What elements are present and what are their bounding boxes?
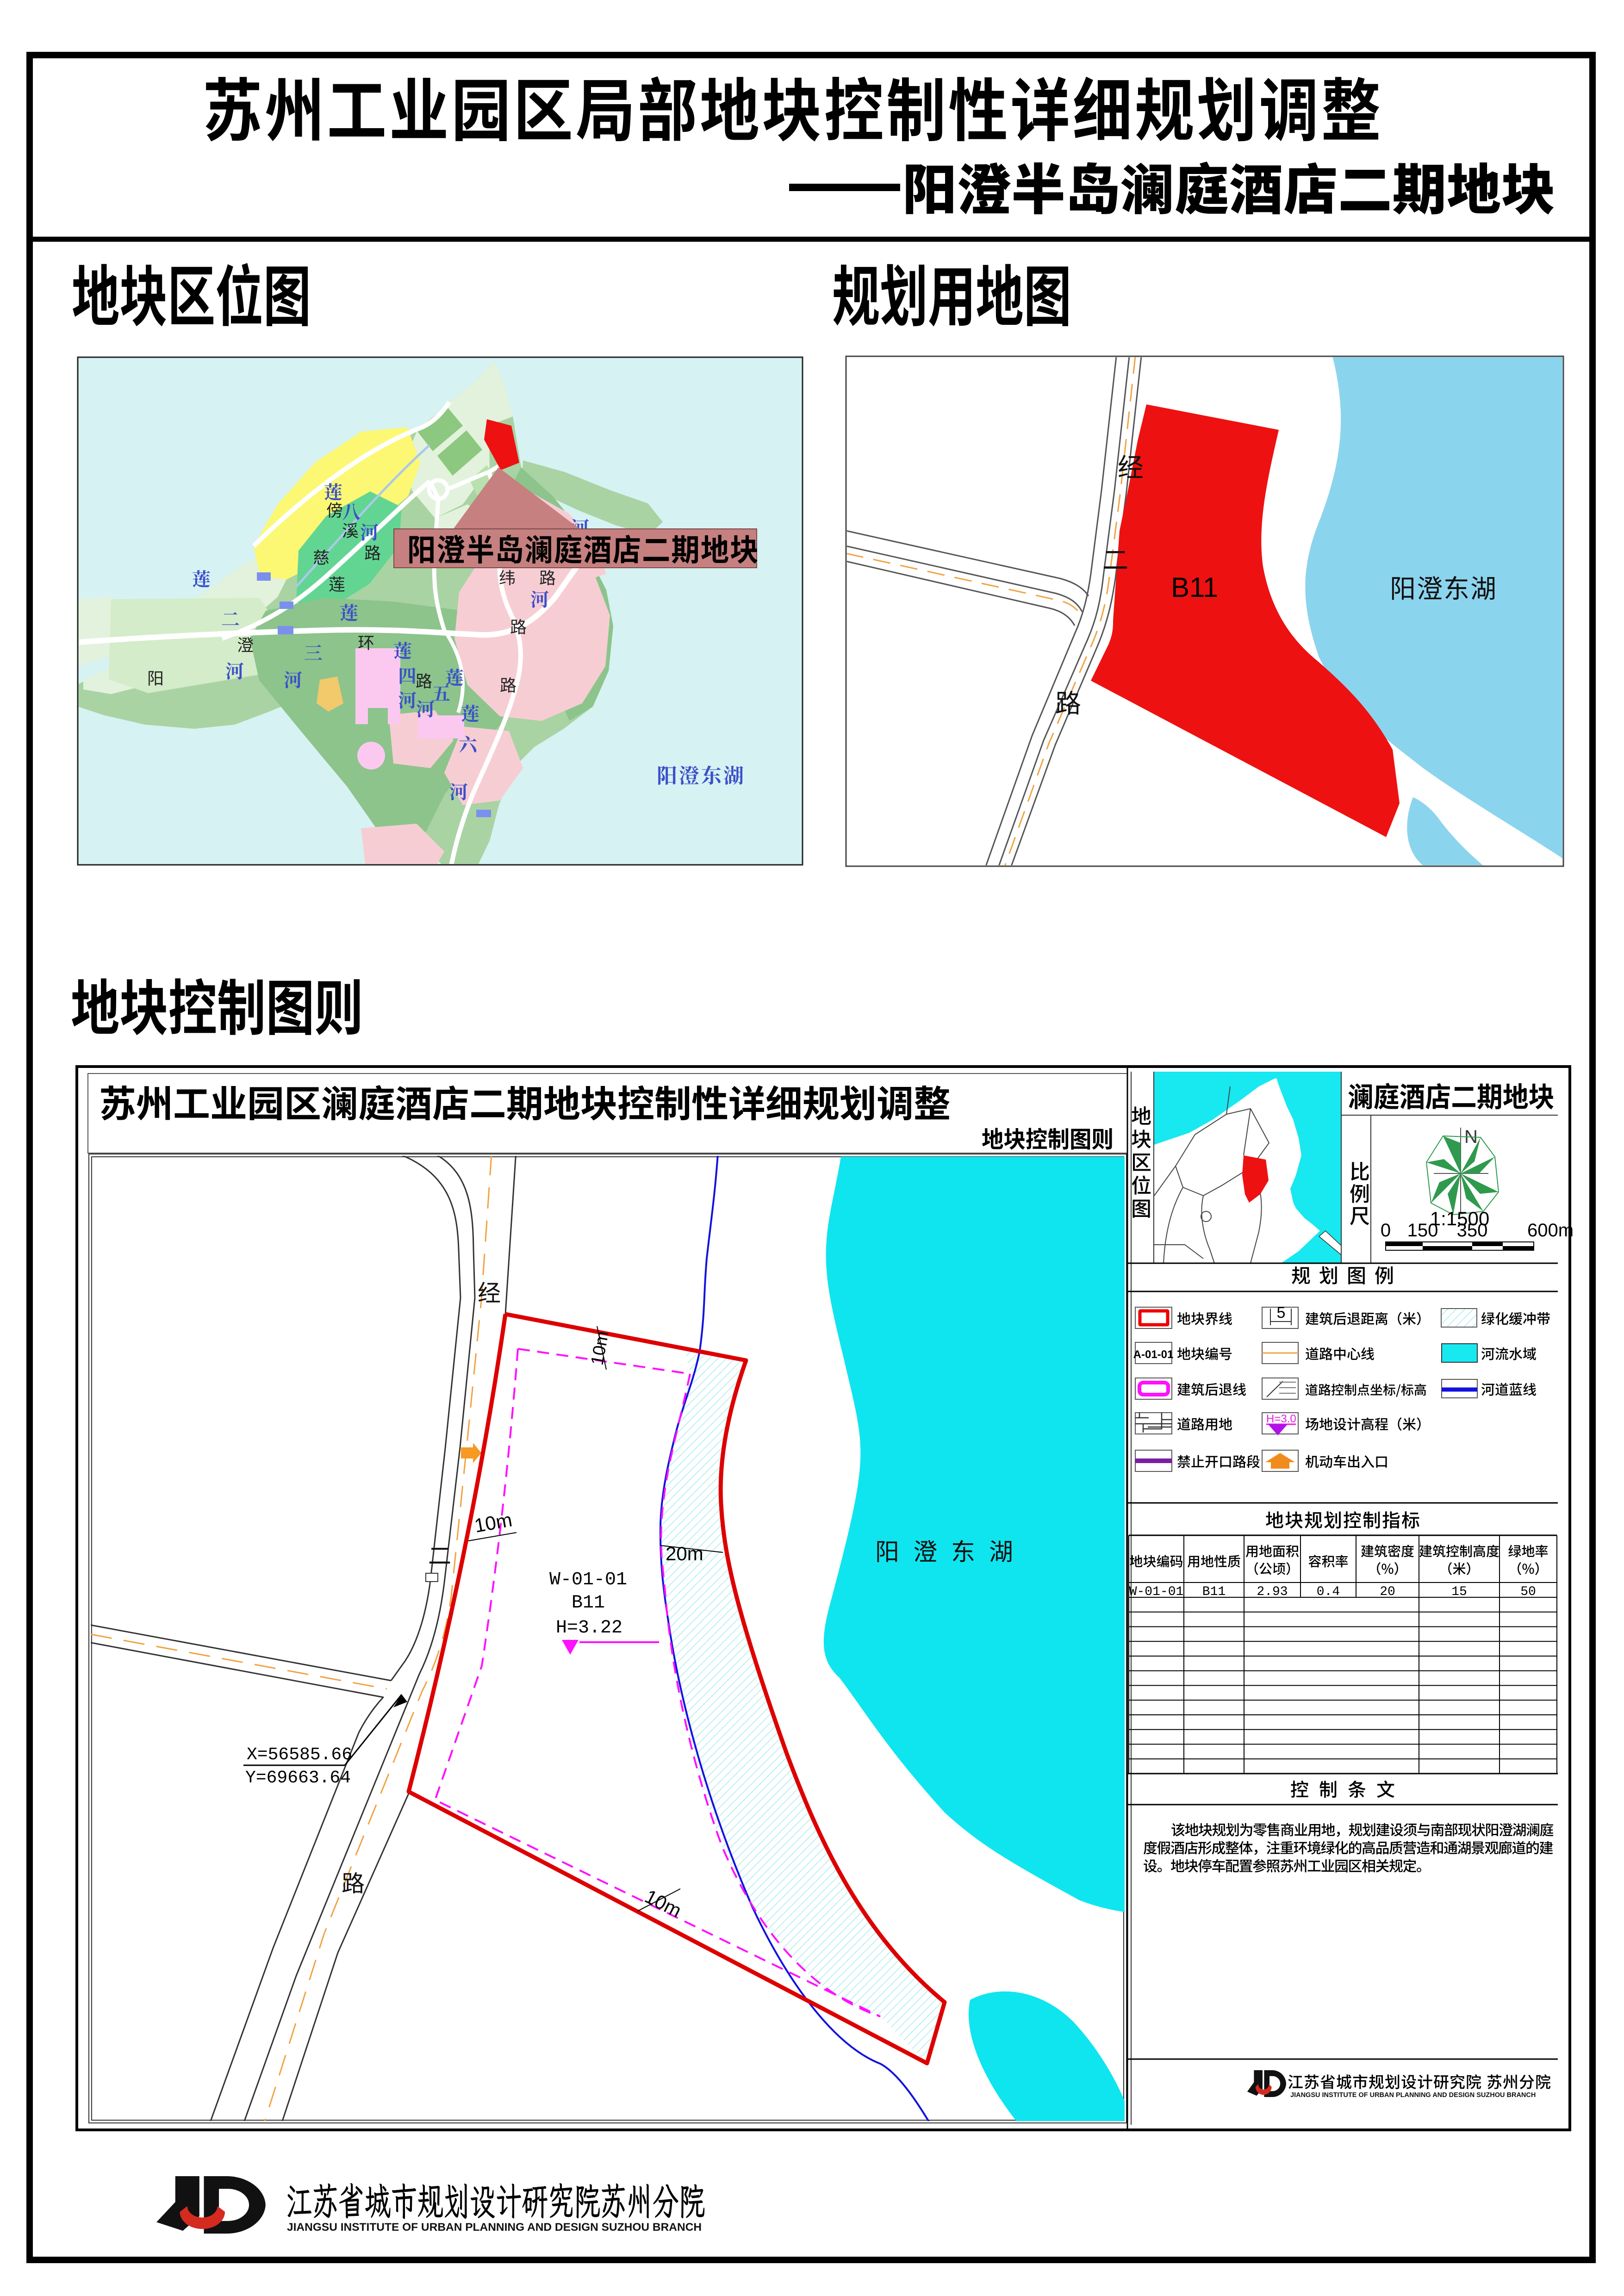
svg-text:15: 15 xyxy=(1451,1585,1467,1599)
svg-text:W-01-01: W-01-01 xyxy=(1129,1585,1184,1599)
svg-text:50: 50 xyxy=(1520,1585,1536,1599)
svg-text:0.4: 0.4 xyxy=(1317,1585,1340,1599)
svg-text:600m: 600m xyxy=(1527,1220,1574,1241)
svg-text:B11: B11 xyxy=(1202,1585,1226,1599)
svg-text:JIANGSU INSTITUTE OF URBAN PLA: JIANGSU INSTITUTE OF URBAN PLANNING AND … xyxy=(1290,2091,1536,2099)
svg-text:H=3.0: H=3.0 xyxy=(1266,1413,1296,1425)
svg-text:B11: B11 xyxy=(572,1593,605,1613)
svg-text:150: 150 xyxy=(1407,1220,1438,1241)
svg-text:10m: 10m xyxy=(588,1329,613,1366)
svg-text:5: 5 xyxy=(1277,1304,1286,1322)
svg-text:A-01-01: A-01-01 xyxy=(1133,1348,1174,1361)
svg-text:JIANGSU INSTITUTE OF URBAN PLA: JIANGSU INSTITUTE OF URBAN PLANNING AND … xyxy=(287,2221,702,2234)
svg-text:350: 350 xyxy=(1457,1220,1488,1241)
svg-text:20m: 20m xyxy=(666,1543,703,1564)
svg-text:10m: 10m xyxy=(473,1508,514,1536)
svg-text:B11: B11 xyxy=(1171,572,1218,603)
svg-text:0: 0 xyxy=(1381,1220,1391,1241)
svg-text:20: 20 xyxy=(1380,1585,1395,1599)
svg-text:X=56585.66: X=56585.66 xyxy=(247,1745,352,1765)
svg-text:H=3.22: H=3.22 xyxy=(556,1618,622,1638)
svg-text:Y=69663.64: Y=69663.64 xyxy=(245,1768,351,1788)
svg-text:W-01-01: W-01-01 xyxy=(549,1570,627,1590)
svg-text:2.93: 2.93 xyxy=(1257,1585,1288,1599)
